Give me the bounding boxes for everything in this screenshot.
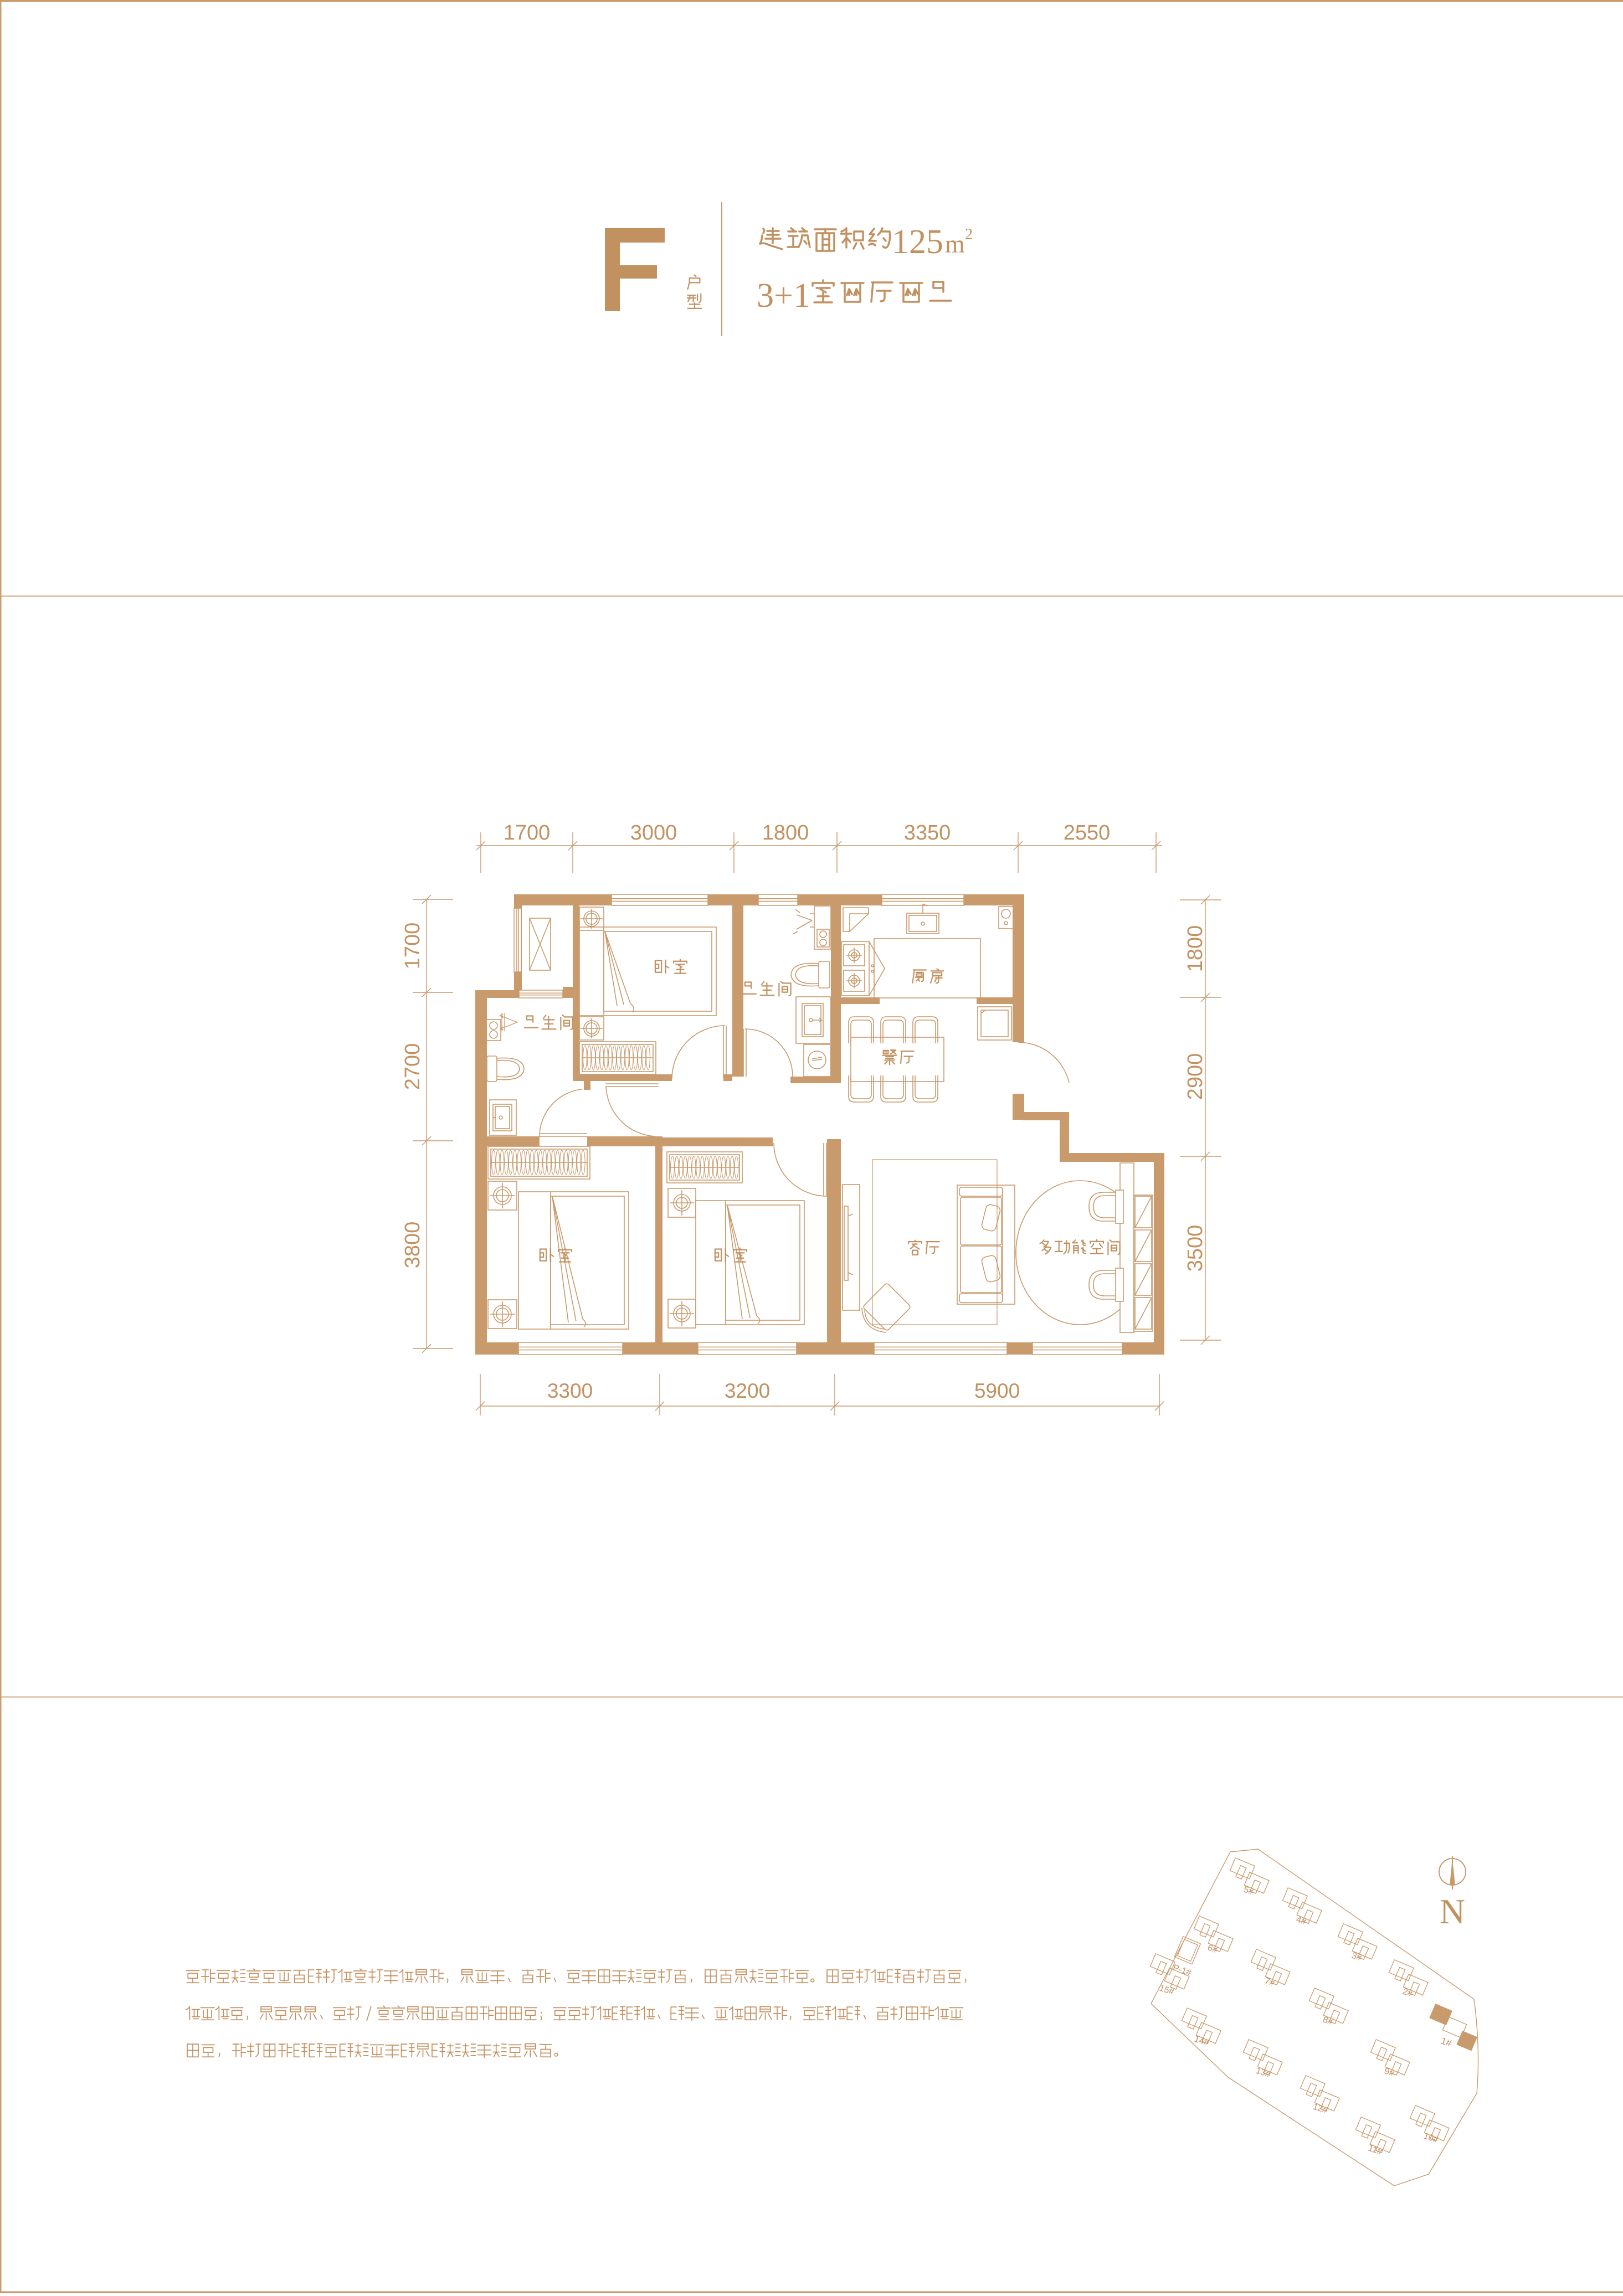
- svg-text:2: 2: [965, 226, 973, 243]
- svg-text:1700: 1700: [504, 821, 551, 845]
- svg-text:3000: 3000: [630, 821, 677, 845]
- svg-text:1800: 1800: [1184, 925, 1207, 972]
- svg-text:3300: 3300: [547, 1379, 593, 1402]
- svg-text:3500: 3500: [1184, 1225, 1207, 1272]
- svg-text:2550: 2550: [1064, 821, 1111, 845]
- svg-text:3#: 3#: [1350, 1951, 1363, 1963]
- svg-text:6#: 6#: [1206, 1943, 1219, 1955]
- svg-text:3200: 3200: [725, 1379, 770, 1402]
- svg-text:4#: 4#: [1295, 1915, 1307, 1927]
- svg-text:2#: 2#: [1401, 1987, 1414, 1999]
- svg-text:12#: 12#: [1312, 2102, 1329, 2115]
- svg-text:3800: 3800: [401, 1222, 424, 1269]
- svg-text:11#: 11#: [1367, 2144, 1384, 2157]
- svg-text:9#: 9#: [1383, 2067, 1395, 2079]
- svg-text:15#: 15#: [1158, 1984, 1175, 1997]
- svg-text:13#: 13#: [1255, 2066, 1272, 2079]
- svg-text:1700: 1700: [401, 923, 424, 970]
- svg-text:10#: 10#: [1422, 2132, 1440, 2145]
- svg-text:125: 125: [892, 223, 943, 261]
- svg-text:1800: 1800: [762, 821, 809, 845]
- svg-text:1#: 1#: [1440, 2036, 1453, 2049]
- svg-text:3350: 3350: [904, 821, 951, 845]
- svg-text:2900: 2900: [1184, 1053, 1207, 1100]
- svg-text:8#: 8#: [1322, 2015, 1334, 2027]
- svg-text:3+1: 3+1: [757, 277, 810, 315]
- svg-text:7#: 7#: [1264, 1976, 1276, 1989]
- svg-text:m: m: [945, 230, 965, 258]
- svg-text:5#: 5#: [1242, 1885, 1255, 1897]
- svg-text:N: N: [1440, 1892, 1465, 1931]
- svg-text:5900: 5900: [974, 1379, 1020, 1402]
- svg-text:2700: 2700: [401, 1043, 424, 1090]
